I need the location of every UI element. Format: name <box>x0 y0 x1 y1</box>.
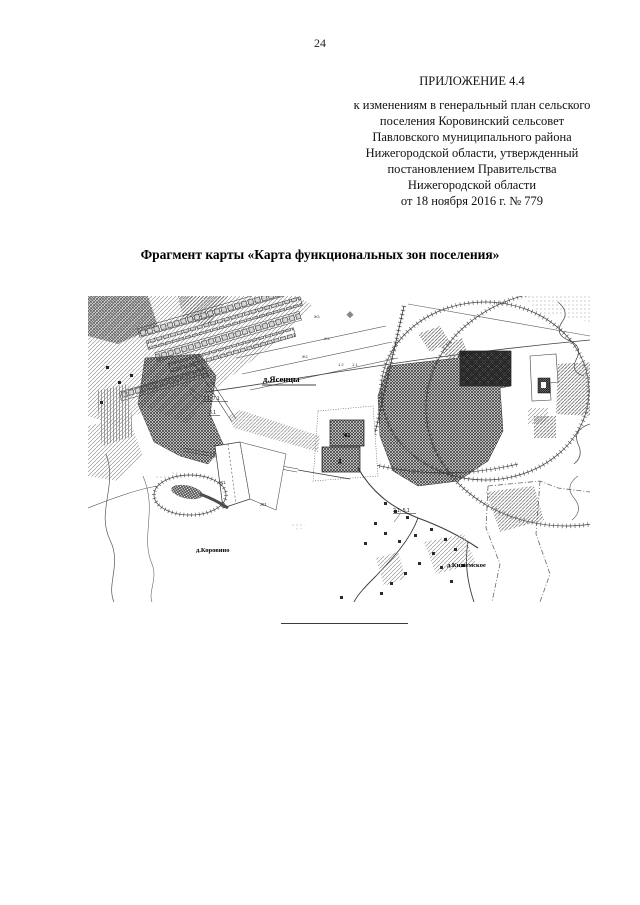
figure-title: Фрагмент карты «Карта функциональных зон… <box>40 247 600 263</box>
white-enclave <box>530 354 558 401</box>
zone-code-zh1: Ж1 <box>260 502 267 507</box>
appendix-header: ПРИЛОЖЕНИЕ 4.4 к изменениям в генеральны… <box>330 73 614 209</box>
parcel-code: Ж1 <box>314 314 321 319</box>
cemetery-zone <box>154 475 228 515</box>
header-line: постановлением Правительства <box>330 161 614 177</box>
header-line: от 18 ноября 2016 г. № 779 <box>330 193 614 209</box>
east-hatch-field <box>556 362 590 416</box>
heath-patch <box>524 296 590 322</box>
footnote-rule <box>281 623 408 624</box>
central-zone-squares: Ж1 Д <box>313 406 378 481</box>
page-number: 24 <box>0 36 640 51</box>
zone-code-lower-square: Д <box>338 459 342 465</box>
settlement-label-korovino: д.Коровино <box>196 547 230 554</box>
parcel-code: 1.1 <box>352 362 358 367</box>
heath-blob <box>291 523 305 530</box>
header-line: к изменениям в генеральный план сельског… <box>330 97 614 113</box>
functional-zones-map: Ж1 Д Ж1 Ж1 <box>88 296 590 602</box>
header-line: Нижегородской области, утвержденный <box>330 145 614 161</box>
header-line: Нижегородской области <box>330 177 614 193</box>
heath-blob <box>156 475 168 481</box>
parcel-code: 1.2 <box>338 362 344 367</box>
left-vline-parcel <box>96 384 134 446</box>
parcel-code: Ж1 <box>302 354 309 359</box>
settlement-label-yasentsy: д.Ясенцы <box>263 374 300 384</box>
heath-blob <box>170 470 178 475</box>
zone-ref-label: 3.1 <box>209 410 216 416</box>
small-hatch-block <box>528 408 548 424</box>
dark-zone-blob <box>138 354 224 464</box>
map-image: Ж1 Д Ж1 Ж1 <box>88 296 590 602</box>
darkest-sub-zone <box>460 351 511 386</box>
appendix-title: ПРИЛОЖЕНИЕ 4.4 <box>330 73 614 89</box>
field-marker <box>346 311 353 318</box>
zone-ref-label: 2.1, 7.1 <box>203 396 220 402</box>
header-line: поселения Коровинский сельсовет <box>330 113 614 129</box>
large-hatched-zone <box>378 351 590 486</box>
document-page: 24 ПРИЛОЖЕНИЕ 4.4 к изменениям в генерал… <box>0 0 640 905</box>
parcel-code: Ж1 <box>324 336 331 341</box>
header-line: Павловского муниципального района <box>330 129 614 145</box>
zone-code-upper-square: Ж1 <box>342 433 351 439</box>
settlement-label-kishemskoe: д.Кишемское <box>447 562 486 569</box>
zone-ref-label: 2.1, 5.1 <box>393 508 410 514</box>
zh1-parcels: Ж1 Ж1 <box>215 442 286 510</box>
